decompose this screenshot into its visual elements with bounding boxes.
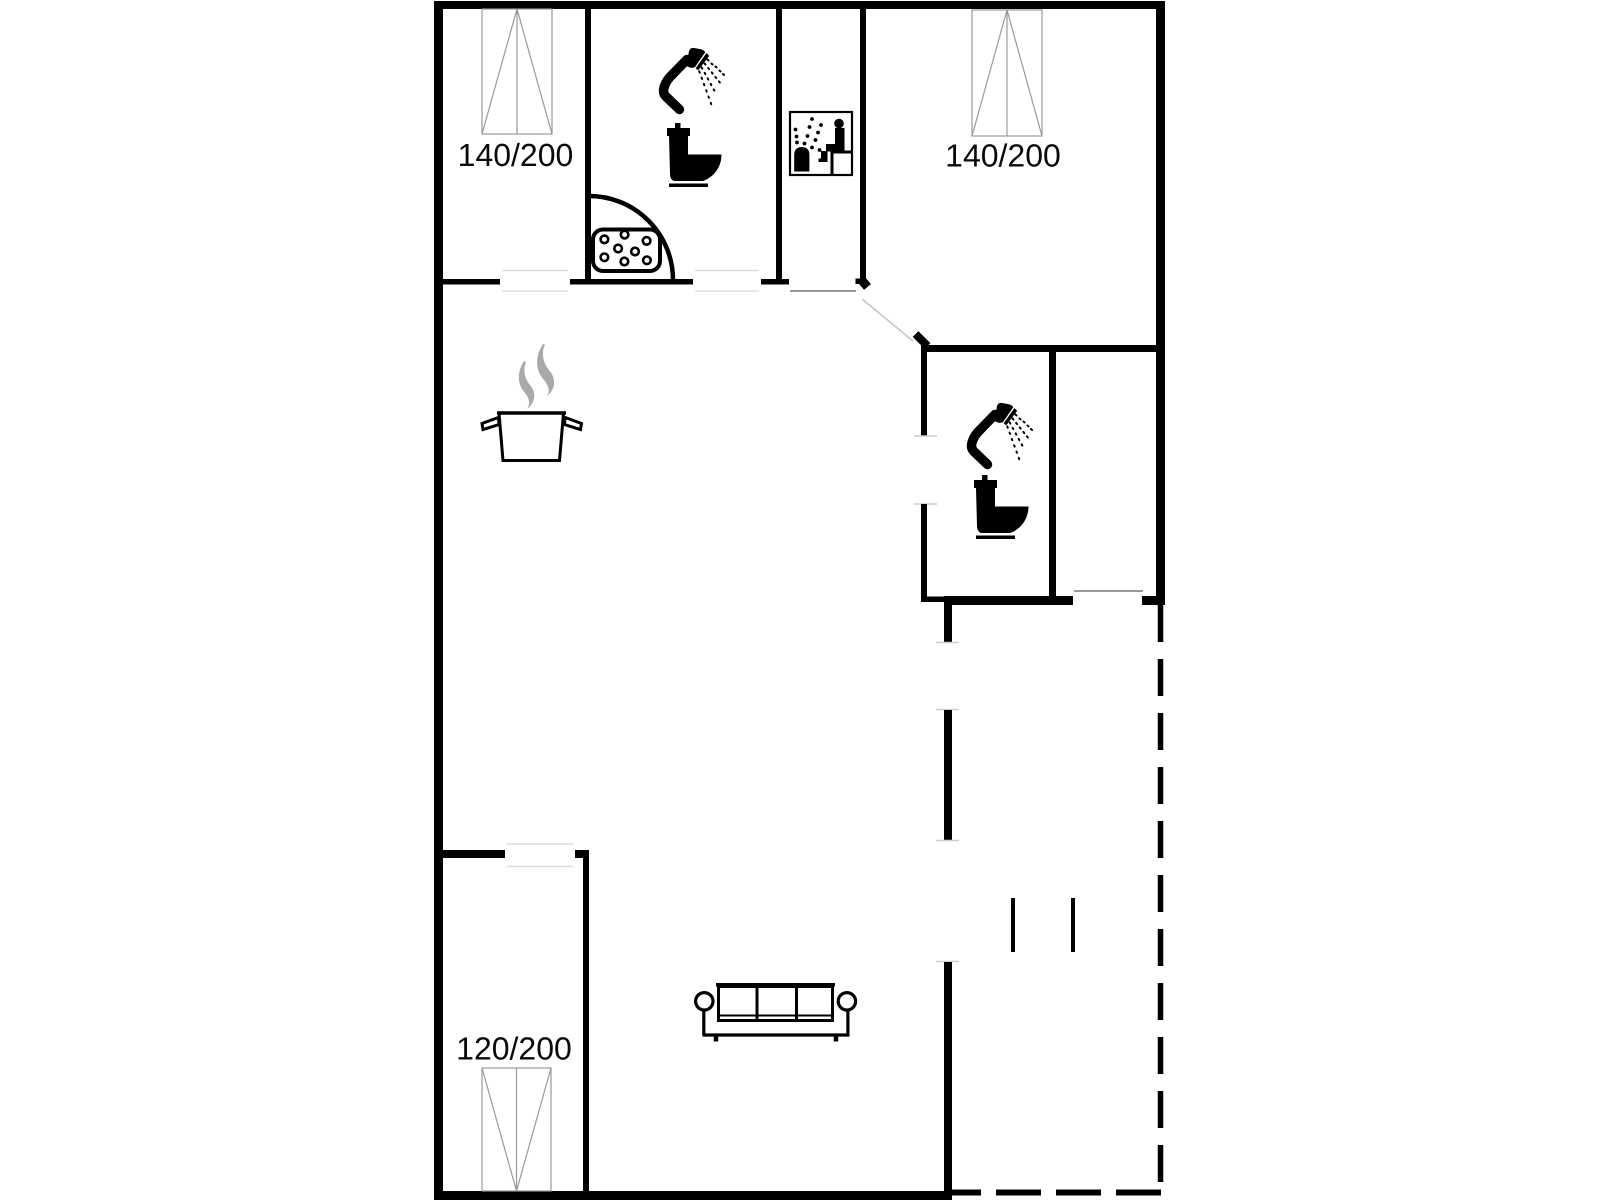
svg-text:140/200: 140/200 — [458, 137, 574, 173]
svg-text:140/200: 140/200 — [945, 137, 1061, 173]
svg-text:120/200: 120/200 — [456, 1030, 572, 1066]
